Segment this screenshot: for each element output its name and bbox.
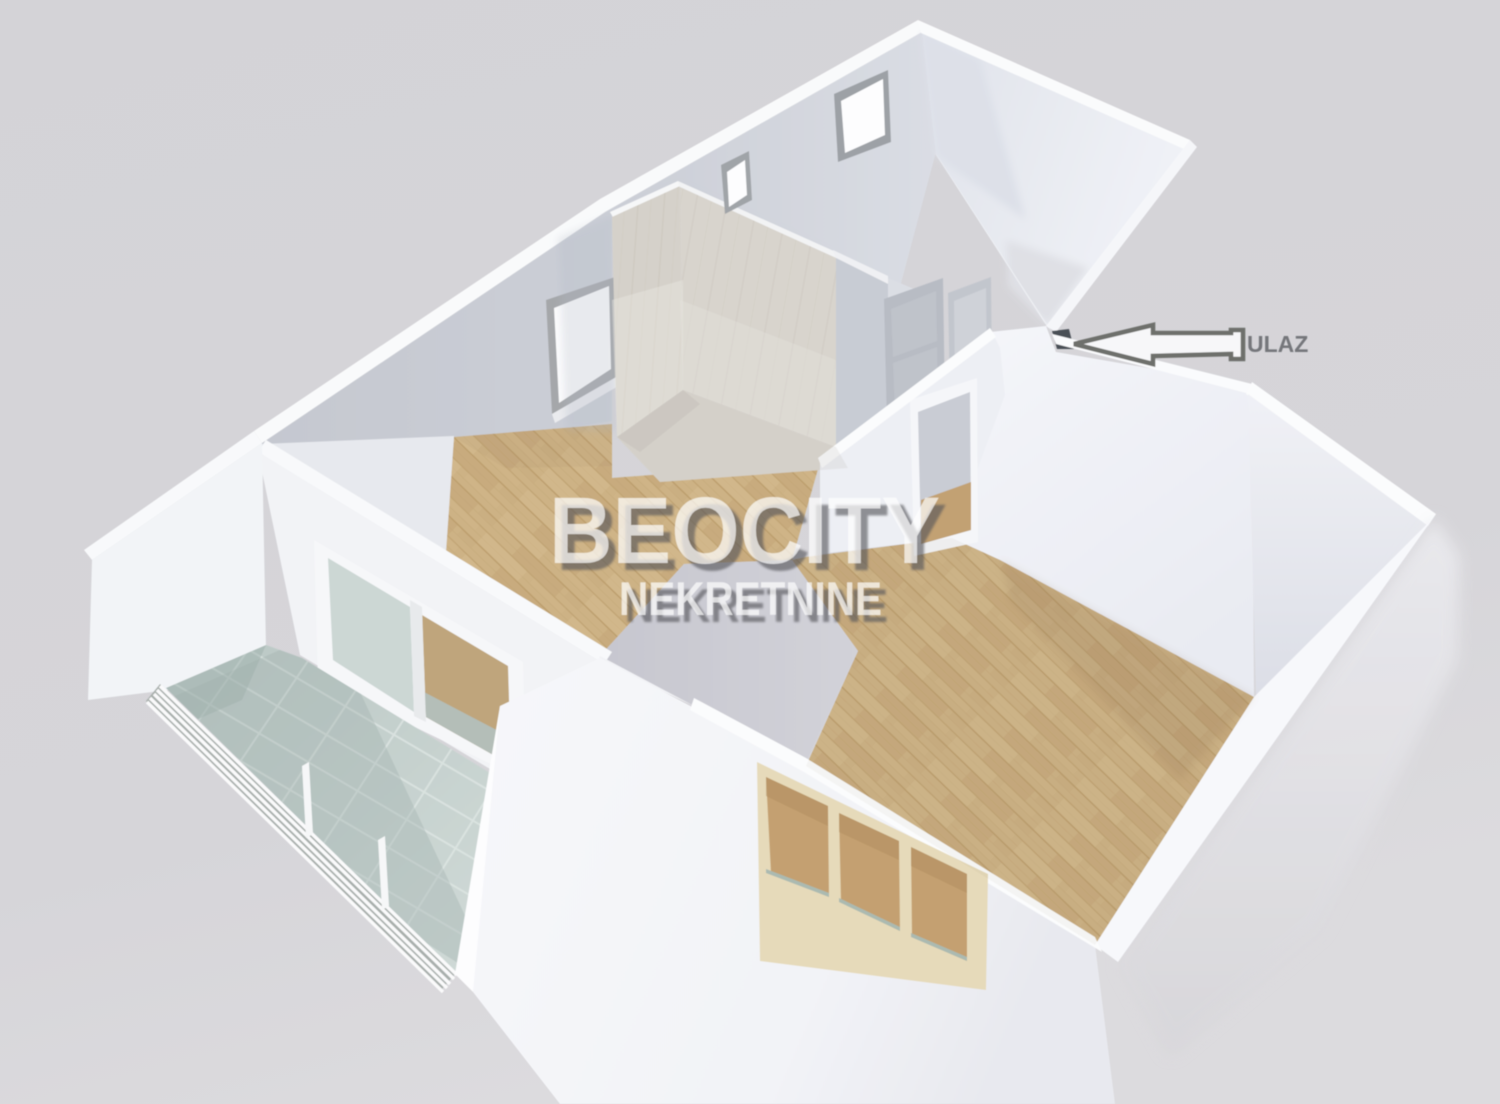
svg-text:NEKRETNINE: NEKRETNINE (619, 572, 882, 625)
svg-text:BEOCITY: BEOCITY (549, 478, 940, 584)
svg-text:ULAZ: ULAZ (1247, 331, 1308, 357)
